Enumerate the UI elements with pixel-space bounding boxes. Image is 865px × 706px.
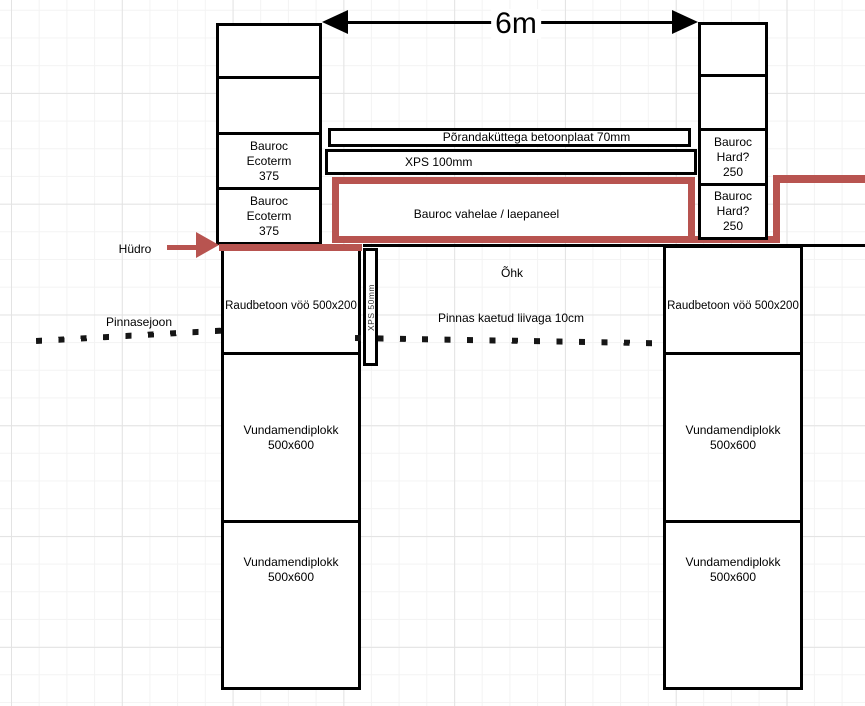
hydro-arrow[interactable] bbox=[167, 232, 219, 258]
floor-xps-label: XPS 100mm bbox=[328, 155, 472, 170]
ground-line-dots-middle[interactable] bbox=[355, 335, 653, 346]
left-foundation-block-2-label: Vundamendiplokk 500x600 bbox=[244, 523, 339, 585]
hydro-membrane-right-vertical[interactable] bbox=[773, 175, 780, 243]
sand-label[interactable]: Pinnas kaetud liivaga 10cm bbox=[411, 311, 611, 326]
left-foundation-block-1-label: Vundamendiplokk 500x600 bbox=[244, 423, 339, 453]
floor-screed-label: Põrandaküttega betoonplaat 70mm bbox=[389, 130, 630, 145]
left-wall-block-3-label: Bauroc Ecoterm 375 bbox=[247, 139, 292, 184]
left-foundation-beam-label: Raudbetoon vöö 500x200 bbox=[225, 287, 357, 314]
floor-panel-box[interactable]: Bauroc vahelae / laepaneel bbox=[332, 177, 695, 243]
left-foundation-beam[interactable]: Raudbetoon vöö 500x200 bbox=[221, 245, 361, 355]
right-wall-block-1[interactable] bbox=[698, 22, 768, 77]
dimension-arrowhead-right bbox=[672, 10, 698, 34]
ground-line-dots-left[interactable] bbox=[36, 328, 222, 344]
ground-line-label[interactable]: Pinnasejoon bbox=[89, 315, 189, 330]
right-wall-block-3-label: Bauroc Hard? 250 bbox=[714, 135, 752, 180]
left-wall-block-3[interactable]: Bauroc Ecoterm 375 bbox=[216, 132, 322, 190]
floor-underside-line[interactable] bbox=[363, 244, 865, 247]
right-foundation-block-1-label: Vundamendiplokk 500x600 bbox=[686, 423, 781, 453]
right-wall-block-4-label: Bauroc Hard? 250 bbox=[714, 189, 752, 234]
floor-xps-bar[interactable]: XPS 100mm bbox=[325, 149, 697, 175]
xps-strip[interactable]: XPS 50mm bbox=[363, 248, 378, 366]
diagram-canvas: Bauroc Ecoterm 375 Bauroc Ecoterm 375 Ba… bbox=[0, 0, 865, 706]
right-foundation-block-2[interactable]: Vundamendiplokk 500x600 bbox=[663, 520, 803, 690]
right-wall-block-4[interactable]: Bauroc Hard? 250 bbox=[698, 183, 768, 240]
right-wall-block-2[interactable] bbox=[698, 74, 768, 131]
right-foundation-beam-label: Raudbetoon vöö 500x200 bbox=[667, 287, 799, 314]
air-label[interactable]: Õhk bbox=[477, 266, 547, 281]
floor-screed-bar[interactable]: Põrandaküttega betoonplaat 70mm bbox=[328, 128, 691, 147]
left-wall-block-1[interactable] bbox=[216, 23, 322, 79]
left-wall-block-4-label: Bauroc Ecoterm 375 bbox=[247, 194, 292, 239]
hydro-arrow-head bbox=[196, 232, 219, 258]
left-wall-block-4[interactable]: Bauroc Ecoterm 375 bbox=[216, 187, 322, 245]
hydro-membrane-left-band[interactable] bbox=[219, 244, 362, 251]
hydro-membrane-right-horizontal[interactable] bbox=[773, 175, 865, 183]
right-foundation-block-2-label: Vundamendiplokk 500x600 bbox=[686, 523, 781, 585]
hydro-arrow-shaft bbox=[167, 245, 199, 250]
left-foundation-block-2[interactable]: Vundamendiplokk 500x600 bbox=[221, 520, 361, 690]
dimension-label: 6m bbox=[491, 9, 541, 39]
dimension-arrow[interactable]: 6m bbox=[322, 0, 698, 44]
right-wall-block-3[interactable]: Bauroc Hard? 250 bbox=[698, 128, 768, 186]
right-foundation-beam[interactable]: Raudbetoon vöö 500x200 bbox=[663, 245, 803, 355]
floor-panel-label: Bauroc vahelae / laepaneel bbox=[414, 198, 613, 222]
left-wall-block-2[interactable] bbox=[216, 76, 322, 135]
dimension-arrowhead-left bbox=[322, 10, 348, 34]
right-foundation-block-1[interactable]: Vundamendiplokk 500x600 bbox=[663, 352, 803, 523]
xps-strip-label: XPS 50mm bbox=[366, 284, 376, 331]
hydro-label[interactable]: Hüdro bbox=[105, 242, 165, 257]
left-foundation-block-1[interactable]: Vundamendiplokk 500x600 bbox=[221, 352, 361, 523]
